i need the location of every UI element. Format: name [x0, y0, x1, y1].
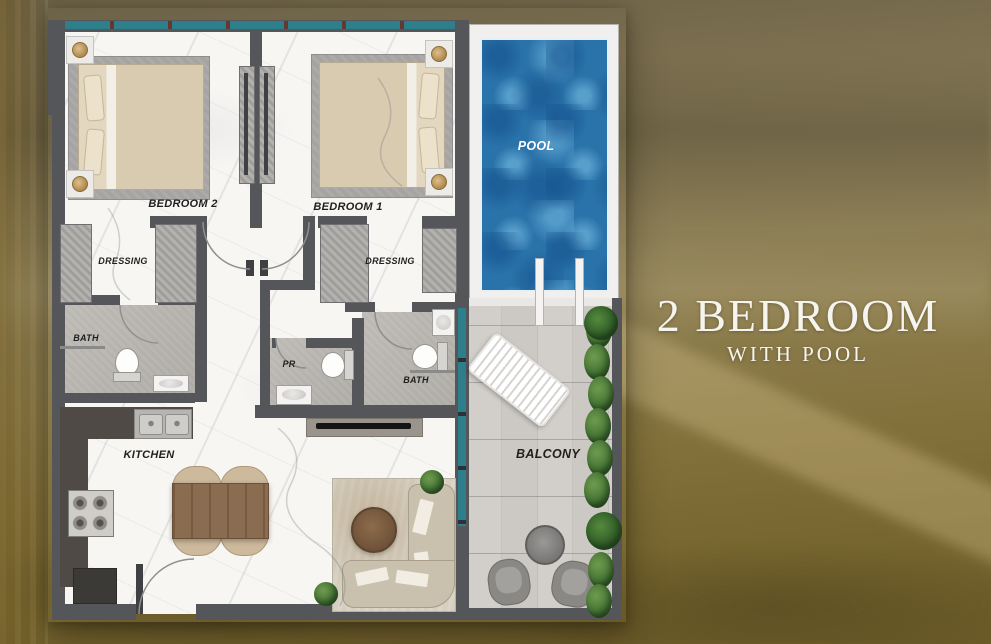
title-line2: WITH POOL — [648, 342, 948, 366]
label-bedroom1: BEDROOM 1 — [313, 201, 382, 213]
label-balcony: BALCONY — [516, 447, 580, 461]
label-dressing-right: DRESSING — [365, 256, 414, 266]
page: BEDROOM 2 BEDROOM 1 DRESSING DRESSING BA… — [0, 0, 991, 644]
title-line1: 2 BEDROOM — [648, 292, 948, 340]
plan-title: 2 BEDROOM WITH POOL — [648, 292, 948, 366]
label-bath-right: BATH — [403, 375, 429, 385]
marble-vein — [278, 428, 345, 606]
label-pool: POOL — [518, 139, 555, 153]
door-arc-bedroom2 — [203, 222, 250, 269]
label-dressing-left: DRESSING — [98, 256, 147, 266]
door-arc-bath-right — [375, 312, 412, 349]
label-kitchen: KITCHEN — [124, 449, 175, 461]
door-arc-entrance — [139, 559, 194, 614]
label-bedroom2: BEDROOM 2 — [148, 198, 217, 210]
door-arc-bedroom1 — [262, 222, 309, 269]
door-arc-bath-left — [120, 305, 158, 343]
label-bath-left: BATH — [73, 333, 99, 343]
door-swing-arcs — [48, 8, 626, 622]
label-pr: PR — [282, 359, 295, 369]
floor-plan: BEDROOM 2 BEDROOM 1 DRESSING DRESSING BA… — [48, 8, 626, 622]
marble-vein — [378, 78, 402, 186]
marble-vein — [108, 208, 130, 300]
background-left-blur — [0, 0, 48, 644]
